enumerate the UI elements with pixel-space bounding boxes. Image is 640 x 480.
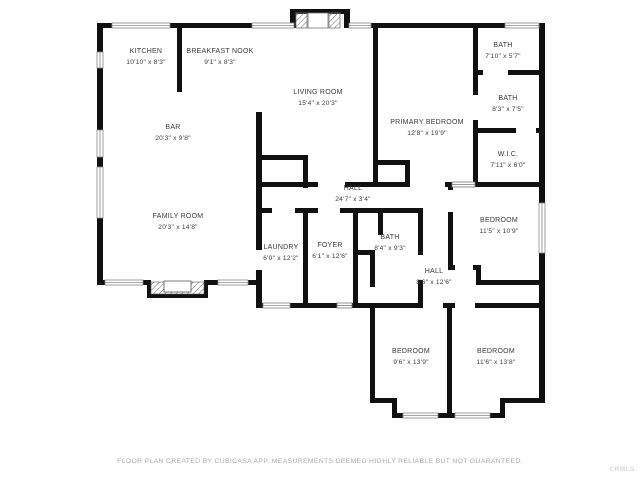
window (403, 413, 438, 418)
room-name: HALL (416, 267, 452, 278)
floor-plan-page: KITCHEN10'10" x 8'3"BREAKFAST NOOK9'1" x… (0, 0, 640, 480)
room-label: BAR20'3" x 9'8" (155, 123, 191, 143)
room-dimensions: 11'5" x 10'9" (480, 226, 519, 236)
room-dimensions: 8'4" x 9'3" (374, 243, 406, 253)
window (263, 303, 290, 308)
room-name: FOYER (312, 241, 348, 252)
room-name: BATH (492, 94, 524, 105)
window (97, 167, 103, 218)
window (455, 413, 490, 418)
room-label: HALL24'7" x 3'4" (335, 184, 371, 204)
room-label: BEDROOM11'6" x 13'8" (477, 347, 516, 367)
room-name: BATH (374, 233, 406, 244)
room-label: LIVING ROOM15'4" x 20'3" (293, 88, 342, 108)
room-name: KITCHEN (126, 47, 165, 58)
room-label: BEDROOM9'6" x 13'9" (392, 347, 430, 367)
room-label: BREAKFAST NOOK9'1" x 8'3" (186, 47, 253, 67)
room-name: BREAKFAST NOOK (186, 47, 253, 58)
room-label: BATH8'4" x 9'3" (374, 233, 406, 253)
window (97, 52, 103, 68)
room-label: W.I.C.7'11" x 6'0" (490, 150, 525, 170)
entry-sidelight (296, 13, 307, 28)
window (539, 203, 545, 253)
room-dimensions: 6'0" x 12'2" (263, 253, 299, 263)
entry-sidelight (329, 13, 340, 28)
room-dimensions: 8'6" x 12'6" (416, 277, 452, 287)
window (105, 280, 143, 285)
window (252, 23, 294, 28)
room-dimensions: 11'6" x 13'8" (477, 357, 516, 367)
room-name: HALL (335, 184, 371, 195)
room-name: BEDROOM (392, 347, 430, 358)
room-dimensions: 8'3" x 7'5" (492, 104, 524, 114)
room-name: BATH (485, 41, 521, 52)
room-name: W.I.C. (490, 150, 525, 161)
room-dimensions: 7'10" x 5'7" (485, 51, 521, 61)
room-name: LIVING ROOM (293, 88, 342, 99)
room-label: HALL8'6" x 12'6" (416, 267, 452, 287)
room-label: KITCHEN10'10" x 8'3" (126, 47, 165, 67)
front-door (337, 303, 352, 308)
room-label: BATH7'10" x 5'7" (485, 41, 521, 61)
window (349, 23, 371, 28)
room-name: BAR (155, 123, 191, 134)
room-name: BEDROOM (477, 347, 516, 358)
room-label: FOYER6'1" x 12'6" (312, 241, 348, 261)
closet-door (452, 182, 475, 187)
window (97, 130, 103, 157)
room-label: BATH8'3" x 7'5" (492, 94, 524, 114)
room-dimensions: 10'10" x 8'3" (126, 57, 165, 67)
window (505, 23, 539, 28)
watermark-text: CRMLS (609, 466, 635, 473)
room-dimensions: 15'4" x 20'3" (293, 98, 342, 108)
room-dimensions: 6'1" x 12'6" (312, 251, 348, 261)
footer-disclaimer: FLOOR PLAN CREATED BY CUBICASA APP. MEAS… (0, 458, 640, 465)
room-name: FAMILY ROOM (153, 212, 204, 223)
entry-door (308, 13, 328, 28)
room-name: BEDROOM (480, 216, 519, 227)
room-dimensions: 12'8" x 19'9" (390, 128, 464, 138)
room-dimensions: 20'3" x 14'8" (153, 222, 204, 232)
room-label: PRIMARY BEDROOM12'8" x 19'9" (390, 118, 464, 138)
room-name: PRIMARY BEDROOM (390, 118, 464, 129)
window (112, 23, 170, 28)
room-dimensions: 24'7" x 3'4" (335, 194, 371, 204)
room-label: LAUNDRY6'0" x 12'2" (263, 243, 299, 263)
room-dimensions: 20'3" x 9'8" (155, 133, 191, 143)
window (218, 280, 248, 285)
room-label: BEDROOM11'5" x 10'9" (480, 216, 519, 236)
fireplace (151, 281, 204, 294)
room-label: FAMILY ROOM20'3" x 14'8" (153, 212, 204, 232)
room-name: LAUNDRY (263, 243, 299, 254)
room-dimensions: 9'1" x 8'3" (186, 57, 253, 67)
room-dimensions: 9'6" x 13'9" (392, 357, 430, 367)
room-dimensions: 7'11" x 6'0" (490, 160, 525, 170)
